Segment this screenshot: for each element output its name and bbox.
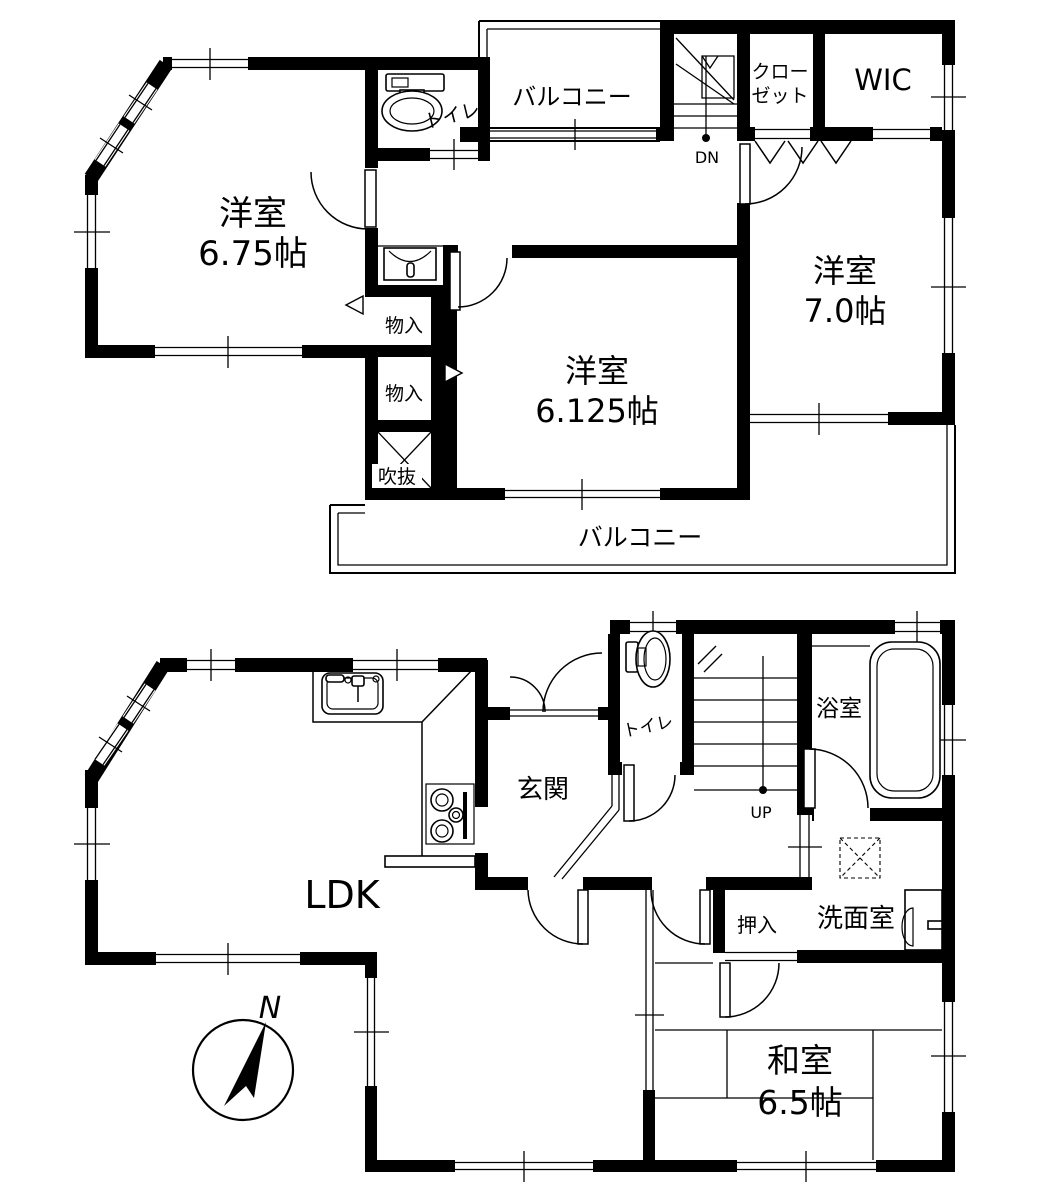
stove-icon: [426, 784, 474, 844]
washitsu-name-label: 和室: [767, 1041, 833, 1080]
room3-size-label: 6.125帖: [535, 392, 659, 430]
floorplan-canvas: 洋室 6.75帖 トイレ バルコニー DN クロー ゼット WIC 洋室 7.0…: [0, 0, 1040, 1200]
room1-name-label: 洋室: [219, 194, 287, 234]
floorplan-page: 洋室 6.75帖 トイレ バルコニー DN クロー ゼット WIC 洋室 7.0…: [0, 0, 1040, 1200]
bath-label: 浴室: [816, 696, 862, 722]
closet-label-line2: ゼット: [751, 85, 808, 107]
vanity-sink-icon: [902, 890, 942, 950]
compass-north-label: N: [259, 991, 281, 1026]
first-floor: N トイレ UP 浴室 玄関 洗面室 押入 LDK 和室 6.5帖: [74, 611, 966, 1182]
stairs-up-label: UP: [750, 803, 772, 822]
entrance-door: [510, 653, 602, 720]
second-floor: 洋室 6.75帖 トイレ バルコニー DN クロー ゼット WIC 洋室 7.0…: [74, 20, 966, 573]
balcony-top-outline: [479, 21, 660, 127]
void-label: 吹抜: [378, 466, 416, 488]
storage2-label: 物入: [385, 383, 423, 405]
hall-sink-icon-2f: [384, 248, 436, 280]
washing-machine-icon: [840, 838, 880, 878]
balcony-top-label: バルコニー: [512, 83, 632, 111]
compass: N: [193, 991, 293, 1120]
entrance-label: 玄関: [517, 775, 569, 805]
doors-1f: [528, 749, 870, 1017]
toilet-1f-label: トイレ: [621, 712, 675, 742]
toilet-icon-1f: [626, 631, 670, 687]
stairs-down: [674, 38, 737, 142]
room2-name-label: 洋室: [813, 252, 877, 290]
oshiire-label: 押入: [737, 913, 777, 937]
room1-size-label: 6.75帖: [198, 234, 308, 274]
balcony-bottom-label: バルコニー: [578, 523, 703, 552]
stairs-dn-label: DN: [695, 148, 719, 167]
wic-label: WIC: [854, 63, 911, 97]
closet-label-line1: クロー: [751, 61, 808, 83]
kitchen-sink-icon: [322, 673, 383, 714]
storage1-label: 物入: [385, 315, 423, 337]
room3-name-label: 洋室: [565, 352, 629, 390]
stairs-up: [694, 646, 797, 794]
room2-size-label: 7.0帖: [804, 292, 887, 330]
ldk-label: LDK: [304, 873, 380, 917]
washroom-label: 洗面室: [817, 904, 895, 934]
washitsu-size-label: 6.5帖: [757, 1083, 842, 1122]
